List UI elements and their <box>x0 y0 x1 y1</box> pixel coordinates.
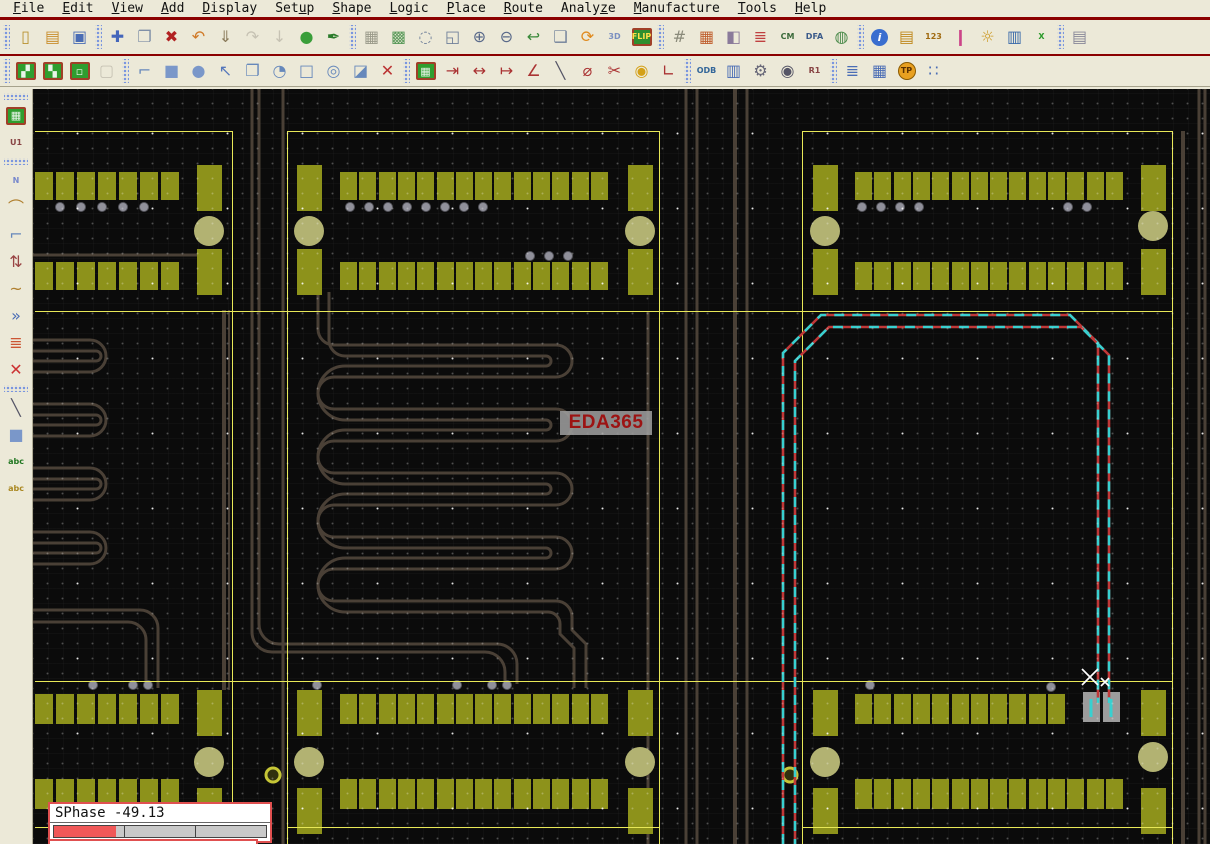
element-info-icon[interactable]: ▤ <box>893 24 920 50</box>
menu-file[interactable]: File <box>6 1 51 16</box>
view-3d-icon[interactable]: 3D <box>601 24 628 50</box>
shade-rect-icon[interactable]: ◪ <box>347 58 374 84</box>
highlight-icon[interactable]: ❙ <box>947 24 974 50</box>
connector-pad <box>197 249 222 295</box>
menu-add[interactable]: Add <box>154 1 191 16</box>
smd-pad <box>514 262 531 290</box>
zoom-select-icon[interactable]: ❑ <box>547 24 574 50</box>
meter-cell <box>195 825 267 838</box>
toolbar-drag-handle[interactable] <box>4 158 28 165</box>
smd-pad <box>913 172 930 200</box>
padstack-grid-icon: ∷ <box>928 63 938 79</box>
smd-pad <box>932 779 949 809</box>
board-outline <box>232 131 233 844</box>
smd-pad <box>494 779 511 809</box>
menu-manufacture[interactable]: Manufacture <box>627 1 727 16</box>
via-structure-icon[interactable]: ✕ <box>2 356 30 383</box>
toolbar-drag-handle[interactable] <box>857 25 864 49</box>
smd-pad <box>591 779 608 809</box>
smd-pad <box>572 172 589 200</box>
redraw-icon: ⟳ <box>581 29 594 45</box>
move-icon[interactable]: ✚ <box>104 24 131 50</box>
thru-hole-pad <box>625 747 655 777</box>
board-check-icon: ▦ <box>416 62 436 80</box>
smd-pad <box>1009 694 1026 724</box>
visibility-bars-icon[interactable]: ▥ <box>1001 24 1028 50</box>
menu-view[interactable]: View <box>105 1 150 16</box>
smd-pad <box>35 172 53 200</box>
add-rect-outline-icon: □ <box>299 63 314 79</box>
smd-pad <box>913 694 930 724</box>
smd-pad <box>1087 779 1104 809</box>
smd-pad <box>855 779 872 809</box>
swap-layers-icon[interactable]: ◧ <box>720 24 747 50</box>
balloon-note-icon: ◉ <box>635 63 649 79</box>
datum-dimension-icon[interactable]: ↦ <box>493 58 520 84</box>
smd-pad <box>98 262 116 290</box>
pin-icon: ✒ <box>327 29 340 45</box>
pcb-design-canvas[interactable]: EDA365 SPhase -49.13 <box>33 89 1210 844</box>
smd-pad <box>990 694 1007 724</box>
pin-icon[interactable]: ✒ <box>320 24 347 50</box>
via <box>478 202 488 212</box>
save-icon: ▣ <box>72 29 87 45</box>
global-check-icon[interactable]: ◍ <box>828 24 855 50</box>
smd-pad <box>552 694 569 724</box>
via <box>97 202 107 212</box>
toolbar-drag-handle[interactable] <box>4 385 28 392</box>
delete-icon: ✖ <box>165 29 178 45</box>
snapshot-camera-icon[interactable]: ◉ <box>774 58 801 84</box>
select-arrow-icon[interactable]: ↖ <box>212 58 239 84</box>
add-corner-icon: ⌐ <box>138 63 151 79</box>
variant-view-icon[interactable]: R1 <box>801 58 828 84</box>
edit-text-icon[interactable]: abc <box>2 475 30 502</box>
column-view-icon[interactable]: ▥ <box>720 58 747 84</box>
thru-hole-pad <box>625 216 655 246</box>
menu-shape[interactable]: Shape <box>325 1 378 16</box>
smd-pad <box>952 172 969 200</box>
add-line-icon: ╲ <box>11 400 21 416</box>
show-rats-icon[interactable]: N <box>2 167 30 194</box>
via-structure-icon: ✕ <box>9 362 22 378</box>
smd-pad <box>572 262 589 290</box>
global-check-icon: ◍ <box>835 29 849 45</box>
add-arc-icon: ◔ <box>273 63 287 79</box>
smd-pad <box>340 262 357 290</box>
via <box>914 202 924 212</box>
element-info-icon: ▤ <box>899 29 914 45</box>
note-balloon-icon[interactable]: ● <box>293 24 320 50</box>
smd-pad <box>855 172 872 200</box>
smd-pad <box>56 694 74 724</box>
slide-icon[interactable]: ⌐ <box>2 221 30 248</box>
connector-pad <box>197 690 222 736</box>
via <box>383 202 393 212</box>
via <box>525 251 535 261</box>
smd-pad <box>855 262 872 290</box>
paste-down-icon[interactable]: ⇓ <box>212 24 239 50</box>
visibility-bars-icon: ▥ <box>1007 29 1022 45</box>
left-tool-palette: ▦U1N⌒⌐⇅~»≣✕╲■abcabc <box>0 89 33 844</box>
smd-pad <box>591 694 608 724</box>
place-component-icon[interactable]: U1 <box>2 129 30 156</box>
shape-edit-icon: ▚ <box>43 62 63 80</box>
smd-pad <box>913 262 930 290</box>
smd-pad <box>990 779 1007 809</box>
layer-stack-icon[interactable]: ≣ <box>747 24 774 50</box>
connector-pad <box>628 249 653 295</box>
add-circle-outline-icon: ◎ <box>327 63 341 79</box>
smd-pad <box>456 694 473 724</box>
zoom-back-icon[interactable]: ↩ <box>520 24 547 50</box>
smd-pad <box>475 262 492 290</box>
shade-rect-icon: ◪ <box>353 63 368 79</box>
smd-pad <box>1029 779 1046 809</box>
connector-pad <box>628 690 653 736</box>
smd-pad <box>533 694 550 724</box>
highlighted-pad <box>1083 692 1100 722</box>
smd-pad <box>855 694 872 724</box>
smd-pad <box>77 172 95 200</box>
toolbar-drag-handle[interactable] <box>4 93 28 100</box>
add-text-icon[interactable]: abc <box>2 448 30 475</box>
dfa-table-icon[interactable]: DFA <box>801 24 828 50</box>
toolbar-drag-handle[interactable] <box>830 59 837 83</box>
shadow-mode-icon[interactable]: ☼ <box>974 24 1001 50</box>
add-rect-icon[interactable]: ■ <box>2 421 30 448</box>
line-45-icon[interactable]: ╲ <box>547 58 574 84</box>
view-3d-icon: 3D <box>608 33 620 41</box>
delete-vertex-icon[interactable]: ✕ <box>374 58 401 84</box>
menu-display[interactable]: Display <box>195 1 264 16</box>
undo-icon[interactable]: ↶ <box>185 24 212 50</box>
shape-polygon-icon[interactable]: ▞ <box>12 58 39 84</box>
smd-pad <box>533 172 550 200</box>
edit-text-icon: abc <box>8 485 24 493</box>
smd-pad <box>359 262 376 290</box>
custom-smooth-icon[interactable]: ~ <box>2 275 30 302</box>
smd-pad <box>98 694 116 724</box>
angle-dimension-icon[interactable]: ∠ <box>520 58 547 84</box>
menu-logic[interactable]: Logic <box>383 1 436 16</box>
fanout-icon: ≣ <box>9 335 22 351</box>
zoom-world-icon[interactable]: ▩ <box>385 24 412 50</box>
smd-pad <box>119 172 137 200</box>
column-view-icon: ▥ <box>726 63 741 79</box>
connector-pad <box>813 165 838 211</box>
smd-pad <box>1067 172 1084 200</box>
delete-icon[interactable]: ✖ <box>158 24 185 50</box>
phase-meter-text: SPhase -49.13 <box>50 804 270 823</box>
connector-pad <box>1141 249 1166 295</box>
smd-pad <box>119 262 137 290</box>
add-rect-outline-icon[interactable]: □ <box>293 58 320 84</box>
via <box>1046 682 1056 692</box>
place-component-icon: U1 <box>10 139 22 147</box>
via <box>345 202 355 212</box>
smd-pad <box>161 172 179 200</box>
add-connect-icon[interactable]: ⌒ <box>2 194 30 221</box>
tools-wrench-icon[interactable]: ⚙ <box>747 58 774 84</box>
smd-pad <box>379 779 396 809</box>
highlight-icon: ❙ <box>954 29 967 45</box>
snap-dimension-icon: ⇥ <box>446 63 459 79</box>
fanout-icon[interactable]: ≣ <box>2 329 30 356</box>
add-circle-outline-icon[interactable]: ◎ <box>320 58 347 84</box>
smd-pad <box>913 779 930 809</box>
zoom-in-icon[interactable]: ⊕ <box>466 24 493 50</box>
grid-select-icon[interactable]: ▦ <box>866 58 893 84</box>
leader-line-icon: ∟ <box>662 63 675 79</box>
smd-pad <box>1087 172 1104 200</box>
smd-pad <box>894 262 911 290</box>
info-icon: i <box>871 29 888 46</box>
new-file-icon[interactable]: ▯ <box>12 24 39 50</box>
toolbar-drag-handle[interactable] <box>684 59 691 83</box>
variant-view-icon: R1 <box>809 67 821 75</box>
smd-pad <box>398 694 415 724</box>
add-filled-circle-icon: ● <box>192 63 206 79</box>
pull-down-icon: ↓ <box>273 29 286 45</box>
toolbar-drag-handle[interactable] <box>403 59 410 83</box>
toolbar-drag-handle[interactable] <box>657 25 664 49</box>
place-module-icon[interactable]: ▦ <box>2 102 30 129</box>
zoom-in-icon: ⊕ <box>473 29 486 45</box>
menu-analyze[interactable]: Analyze <box>554 1 623 16</box>
angle-dimension-icon: ∠ <box>526 63 540 79</box>
meter-cell <box>53 825 125 838</box>
print-icon: ▤ <box>1072 29 1087 45</box>
via <box>76 202 86 212</box>
constraint-manager-icon: CM <box>781 33 795 41</box>
redraw-icon[interactable]: ⟳ <box>574 24 601 50</box>
redo-icon: ↷ <box>246 29 259 45</box>
smd-pad <box>140 694 158 724</box>
leader-line-icon[interactable]: ∟ <box>655 58 682 84</box>
zoom-select-icon: ❑ <box>553 29 567 45</box>
smd-pad <box>1029 694 1046 724</box>
smd-pad <box>533 262 550 290</box>
smd-pad <box>475 172 492 200</box>
constraint-manager-icon[interactable]: CM <box>774 24 801 50</box>
toolbar-drag-handle[interactable] <box>3 59 10 83</box>
trim-icon[interactable]: ✂ <box>601 58 628 84</box>
board-outline <box>802 131 1172 132</box>
board-check-icon[interactable]: ▦ <box>412 58 439 84</box>
thru-hole-pad <box>194 216 224 246</box>
zoom-prev-view-icon[interactable]: ◌ <box>412 24 439 50</box>
smd-pad <box>514 172 531 200</box>
board-outline <box>659 131 660 844</box>
board-outline <box>35 681 1172 682</box>
thru-hole-pad <box>294 747 324 777</box>
toolbar-drag-handle[interactable] <box>1057 25 1064 49</box>
via <box>895 202 905 212</box>
smd-pad <box>1106 262 1123 290</box>
testpoint-icon: TP <box>898 62 916 80</box>
smd-pad <box>359 779 376 809</box>
smd-pad <box>572 779 589 809</box>
via <box>402 202 412 212</box>
menu-setup[interactable]: Setup <box>268 1 321 16</box>
report-list-icon[interactable]: ≣ <box>839 58 866 84</box>
toolbar-drag-handle[interactable] <box>122 59 129 83</box>
balloon-note-icon[interactable]: ◉ <box>628 58 655 84</box>
smd-pad <box>533 779 550 809</box>
connector-pad <box>1141 690 1166 736</box>
smd-pad <box>379 262 396 290</box>
board-outline <box>35 131 232 132</box>
smd-pad <box>932 172 949 200</box>
add-line-icon[interactable]: ╲ <box>2 394 30 421</box>
smd-pad <box>417 694 434 724</box>
toolbar-row-2: ▞▚▫▢⌐■●↖❐◔□◎◪✕▦⇥↔↦∠╲⌀✂◉∟ODB▥⚙◉R1≣▦TP∷ <box>0 54 1210 87</box>
color-dialog-icon[interactable]: ▦ <box>693 24 720 50</box>
add-corner-icon[interactable]: ⌐ <box>131 58 158 84</box>
toolbar-drag-handle[interactable] <box>95 25 102 49</box>
shape-merge-icon: ▢ <box>93 58 120 84</box>
open-folder-icon[interactable]: ▤ <box>39 24 66 50</box>
status-check-icon[interactable]: X <box>1028 24 1055 50</box>
smd-pad <box>494 694 511 724</box>
copy-shape-icon[interactable]: ❐ <box>239 58 266 84</box>
radius-dimension-icon[interactable]: ⌀ <box>574 58 601 84</box>
select-arrow-icon: ↖ <box>219 63 232 79</box>
via <box>118 202 128 212</box>
smd-pad <box>398 262 415 290</box>
padstack-grid-icon[interactable]: ∷ <box>920 58 947 84</box>
via <box>55 202 65 212</box>
shape-void-icon[interactable]: ▫ <box>66 58 93 84</box>
smd-pad <box>437 262 454 290</box>
smd-pad <box>1087 262 1104 290</box>
smd-pad <box>572 694 589 724</box>
zoom-points-icon[interactable]: ▦ <box>358 24 385 50</box>
zoom-world-icon: ▩ <box>391 29 406 45</box>
via <box>1082 202 1092 212</box>
smd-pad <box>894 172 911 200</box>
grid-toggle-icon[interactable]: # <box>666 24 693 50</box>
status-check-icon: X <box>1038 33 1044 41</box>
toolbar-row-1: ▯▤▣✚❐✖↶⇓↷↓●✒▦▩◌◱⊕⊖↩❑⟳3DFLIP#▦◧≣CMDFA◍i▤1… <box>0 20 1210 54</box>
smd-pad <box>417 779 434 809</box>
info-icon[interactable]: i <box>866 24 893 50</box>
odb-export-icon[interactable]: ODB <box>693 58 720 84</box>
smd-pad <box>1106 779 1123 809</box>
via <box>876 202 886 212</box>
flip-design-icon[interactable]: FLIP <box>628 24 655 50</box>
menu-place[interactable]: Place <box>440 1 493 16</box>
meter-fill <box>54 826 116 837</box>
smd-pad <box>437 172 454 200</box>
smd-pad <box>1029 172 1046 200</box>
redo-icon: ↷ <box>239 24 266 50</box>
snap-dimension-icon[interactable]: ⇥ <box>439 58 466 84</box>
menu-tools[interactable]: Tools <box>731 1 784 16</box>
smd-pad <box>417 262 434 290</box>
route-phase-meter: SPhase -49.13 <box>48 802 272 843</box>
smd-pad <box>952 779 969 809</box>
thru-hole-pad <box>810 747 840 777</box>
menu-route[interactable]: Route <box>497 1 550 16</box>
open-folder-icon: ▤ <box>45 29 60 45</box>
menu-help[interactable]: Help <box>788 1 833 16</box>
thru-hole-pad <box>810 216 840 246</box>
save-icon[interactable]: ▣ <box>66 24 93 50</box>
gloss-icon[interactable]: » <box>2 302 30 329</box>
smd-pad <box>1009 779 1026 809</box>
smd-pad <box>514 779 531 809</box>
delete-vertex-icon: ✕ <box>381 63 394 79</box>
note-balloon-icon: ● <box>300 29 314 45</box>
toolbar-drag-handle[interactable] <box>349 25 356 49</box>
copy-icon[interactable]: ❐ <box>131 24 158 50</box>
smd-pad <box>417 172 434 200</box>
datum-dimension-icon: ↦ <box>500 63 513 79</box>
line-45-icon: ╲ <box>556 63 566 79</box>
menu-edit[interactable]: Edit <box>55 1 100 16</box>
smd-pad <box>552 262 569 290</box>
smd-pad <box>971 172 988 200</box>
smd-pad <box>35 694 53 724</box>
via <box>364 202 374 212</box>
smd-pad <box>494 262 511 290</box>
smd-pad <box>119 694 137 724</box>
snapshot-camera-icon: ◉ <box>781 63 795 79</box>
smd-pad <box>990 172 1007 200</box>
shape-polygon-icon: ▞ <box>16 62 36 80</box>
shape-merge-icon: ▢ <box>99 63 114 79</box>
smd-pad <box>77 694 95 724</box>
zoom-fit-icon[interactable]: ◱ <box>439 24 466 50</box>
add-filled-circle-icon[interactable]: ● <box>185 58 212 84</box>
menubar: FileEditViewAddDisplaySetupShapeLogicPla… <box>0 0 1210 17</box>
linear-dimension-icon[interactable]: ↔ <box>466 58 493 84</box>
connector-pad <box>297 165 322 211</box>
smd-pad <box>56 262 74 290</box>
toolbar-drag-handle[interactable] <box>3 25 10 49</box>
connector-pad <box>628 165 653 211</box>
tools-wrench-icon: ⚙ <box>753 63 767 79</box>
smd-pad <box>340 172 357 200</box>
testpoint-icon[interactable]: TP <box>893 58 920 84</box>
smd-pad <box>932 694 949 724</box>
print-icon[interactable]: ▤ <box>1066 24 1093 50</box>
connector-pad <box>813 690 838 736</box>
delay-tune-icon[interactable]: ⇅ <box>2 248 30 275</box>
gloss-icon: » <box>11 308 21 324</box>
smd-pad <box>552 172 569 200</box>
smd-pad <box>379 172 396 200</box>
smd-pad <box>359 172 376 200</box>
add-arc-icon[interactable]: ◔ <box>266 58 293 84</box>
swap-layers-icon: ◧ <box>726 29 741 45</box>
smd-pad <box>1009 172 1026 200</box>
zoom-out-icon[interactable]: ⊖ <box>493 24 520 50</box>
measure-123-icon: 123 <box>925 33 942 41</box>
thru-hole-pad <box>1138 211 1168 241</box>
smd-pad <box>98 172 116 200</box>
grid-select-icon: ▦ <box>872 63 887 79</box>
shape-edit-icon[interactable]: ▚ <box>39 58 66 84</box>
add-filled-rect-icon[interactable]: ■ <box>158 58 185 84</box>
paste-down-icon: ⇓ <box>219 29 232 45</box>
smd-pad <box>359 694 376 724</box>
measure-123-icon[interactable]: 123 <box>920 24 947 50</box>
smd-pad <box>1029 262 1046 290</box>
smd-pad <box>437 694 454 724</box>
